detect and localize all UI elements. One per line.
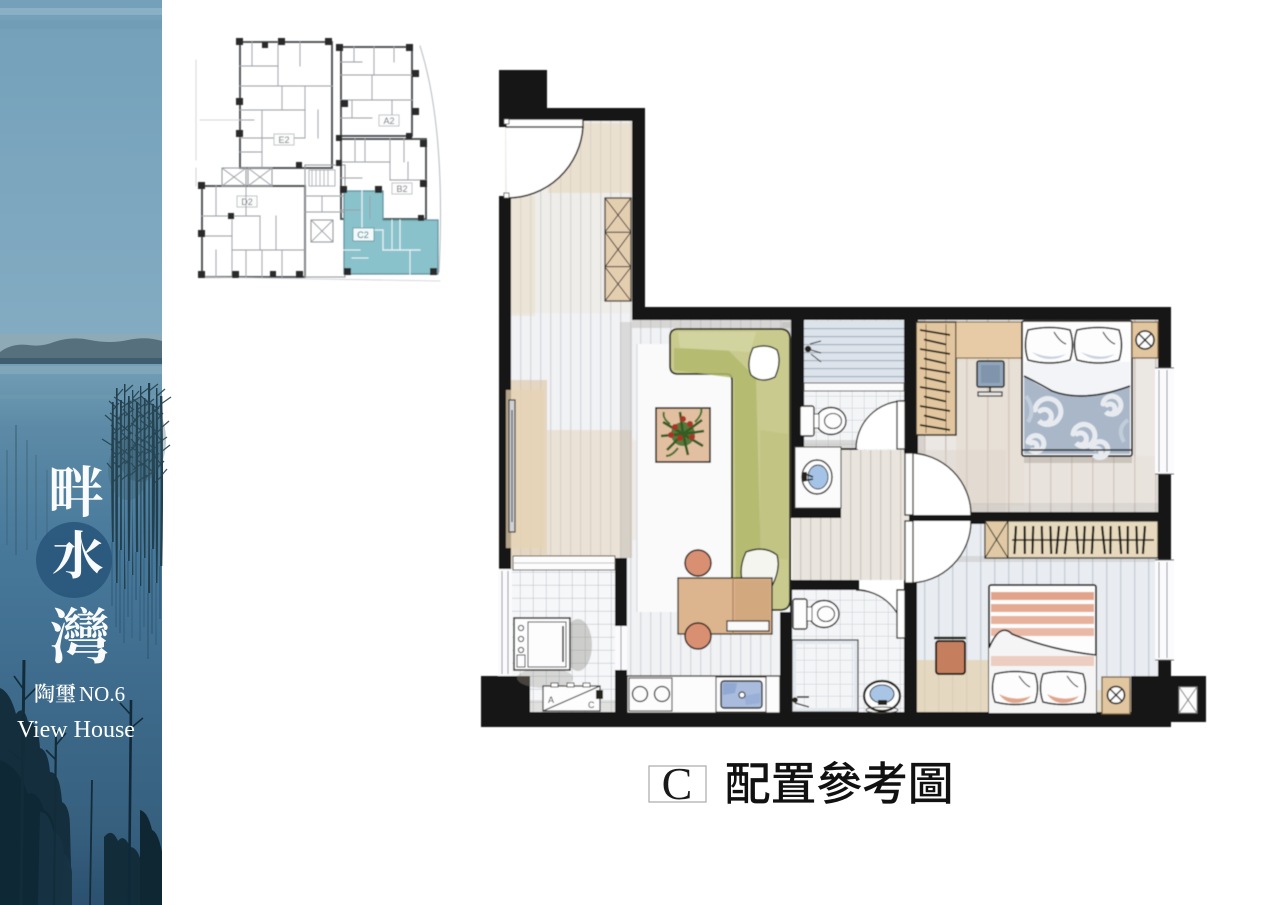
svg-text:C: C [662, 758, 693, 809]
svg-text:C: C [588, 700, 595, 710]
svg-text:A2: A2 [383, 116, 394, 126]
svg-text:NO.6: NO.6 [79, 682, 125, 706]
svg-text:C2: C2 [357, 230, 369, 240]
svg-text:E2: E2 [278, 135, 289, 145]
svg-text:A: A [548, 695, 554, 705]
svg-text:D2: D2 [241, 197, 253, 207]
svg-text:View House: View House [17, 717, 135, 743]
svg-text:B2: B2 [396, 184, 407, 194]
